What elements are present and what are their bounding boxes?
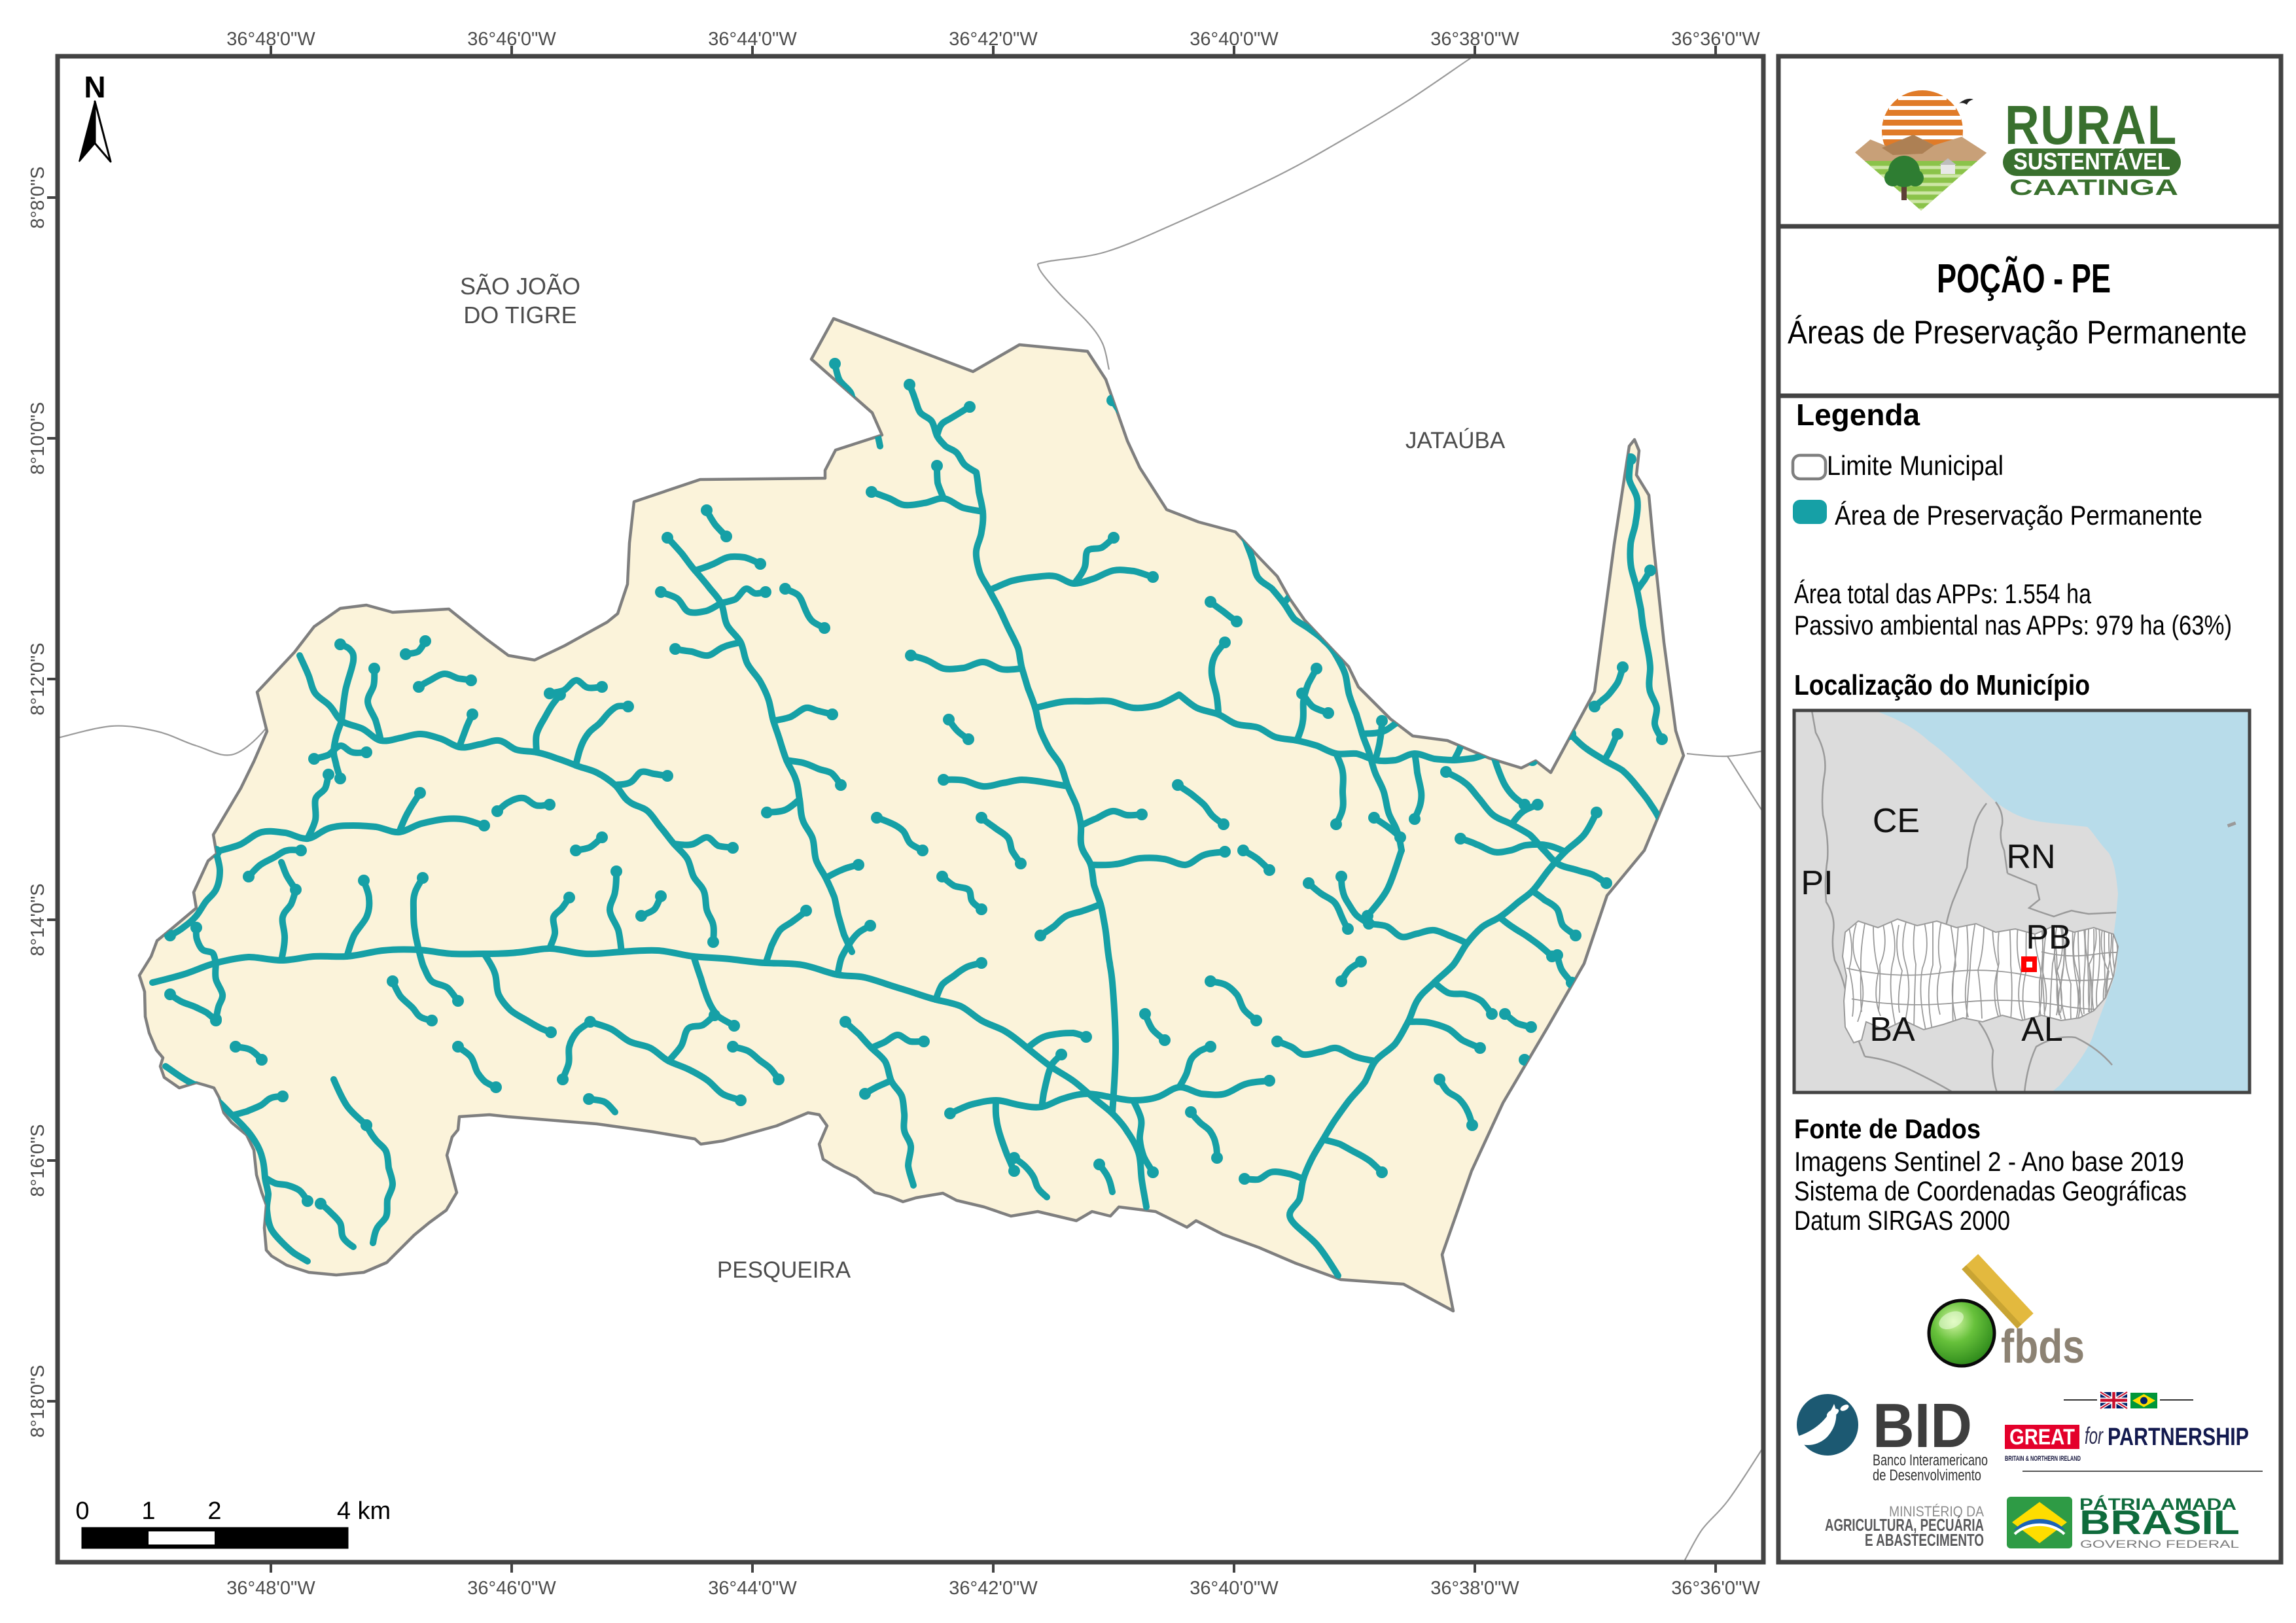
svg-text:PI: PI	[1801, 864, 1833, 902]
svg-text:Imagens Sentinel 2 - Ano base: Imagens Sentinel 2 - Ano base 2019	[1794, 1146, 2184, 1177]
svg-text:fbds: fbds	[2001, 1321, 2085, 1373]
svg-text:36°46'0"W: 36°46'0"W	[467, 29, 556, 50]
svg-text:8°10'0"S: 8°10'0"S	[27, 402, 48, 474]
svg-text:Legenda: Legenda	[1796, 398, 1920, 432]
svg-text:PB: PB	[2026, 918, 2071, 956]
svg-text:DO TIGRE: DO TIGRE	[463, 302, 576, 328]
svg-text:36°42'0"W: 36°42'0"W	[949, 29, 1038, 50]
svg-text:POÇÃO - PE: POÇÃO - PE	[1937, 256, 2111, 302]
svg-text:Datum SIRGAS 2000: Datum SIRGAS 2000	[1794, 1205, 2010, 1236]
svg-text:1: 1	[141, 1497, 155, 1525]
svg-text:2: 2	[207, 1497, 221, 1525]
svg-text:E ABASTECIMENTO: E ABASTECIMENTO	[1865, 1530, 1984, 1550]
svg-text:GOVERNO FEDERAL: GOVERNO FEDERAL	[2080, 1538, 2239, 1550]
svg-text:de Desenvolvimento: de Desenvolvimento	[1873, 1467, 1981, 1484]
svg-text:8°8'0"S: 8°8'0"S	[27, 166, 48, 228]
svg-text:8°18'0"S: 8°18'0"S	[27, 1365, 48, 1437]
svg-text:8°12'0"S: 8°12'0"S	[27, 642, 48, 715]
svg-text:Fonte de Dados: Fonte de Dados	[1794, 1113, 1981, 1144]
svg-text:8°16'0"S: 8°16'0"S	[27, 1124, 48, 1196]
svg-text:JATAÚBA: JATAÚBA	[1405, 428, 1506, 453]
svg-text:36°38'0"W: 36°38'0"W	[1430, 29, 1519, 50]
svg-text:PESQUEIRA: PESQUEIRA	[717, 1257, 851, 1283]
svg-text:36°36'0"W: 36°36'0"W	[1671, 29, 1760, 50]
svg-text:BRITAIN & NORTHERN IRELAND: BRITAIN & NORTHERN IRELAND	[2005, 1455, 2081, 1463]
svg-text:RN: RN	[2006, 838, 2055, 876]
svg-text:RURAL: RURAL	[2005, 94, 2178, 156]
svg-text:GREAT: GREAT	[2009, 1425, 2075, 1450]
svg-text:36°48'0"W: 36°48'0"W	[226, 1578, 315, 1599]
svg-text:36°36'0"W: 36°36'0"W	[1671, 1578, 1760, 1599]
svg-text:SUSTENTÁVEL: SUSTENTÁVEL	[2013, 148, 2170, 175]
svg-text:for: for	[2085, 1422, 2104, 1449]
svg-text:0: 0	[75, 1497, 89, 1525]
svg-text:36°44'0"W: 36°44'0"W	[708, 1578, 797, 1599]
svg-text:AL: AL	[2021, 1011, 2063, 1049]
svg-text:36°40'0"W: 36°40'0"W	[1190, 1578, 1279, 1599]
svg-text:BRASIL: BRASIL	[2079, 1504, 2240, 1542]
svg-text:8°14'0"S: 8°14'0"S	[27, 883, 48, 956]
svg-text:Áreas de Preservação Permanent: Áreas de Preservação Permanente	[1788, 314, 2247, 351]
svg-text:Passivo ambiental nas APPs: 97: Passivo ambiental nas APPs: 979 ha (63%)	[1794, 610, 2232, 640]
svg-text:4 km: 4 km	[337, 1497, 391, 1525]
svg-text:Localização do Município: Localização do Município	[1794, 669, 2090, 701]
svg-text:36°44'0"W: 36°44'0"W	[708, 29, 797, 50]
svg-text:BA: BA	[1869, 1011, 1915, 1049]
svg-text:Área total das APPs: 1.554 ha: Área total das APPs: 1.554 ha	[1794, 578, 2092, 609]
svg-text:SÃO JOÃO: SÃO JOÃO	[460, 273, 580, 300]
svg-text:Sistema de Coordenadas Geográf: Sistema de Coordenadas Geográficas	[1794, 1176, 2187, 1206]
svg-text:PARTNERSHIP: PARTNERSHIP	[2108, 1423, 2249, 1451]
svg-text:CAATINGA: CAATINGA	[2009, 175, 2178, 200]
svg-text:36°40'0"W: 36°40'0"W	[1190, 29, 1279, 50]
svg-text:BID: BID	[1873, 1391, 1972, 1461]
svg-text:Limite Municipal: Limite Municipal	[1827, 450, 2004, 481]
svg-text:36°38'0"W: 36°38'0"W	[1430, 1578, 1519, 1599]
svg-text:CE: CE	[1873, 802, 1920, 840]
svg-text:Área de Preservação Permanente: Área de Preservação Permanente	[1835, 500, 2202, 531]
svg-text:N: N	[84, 70, 105, 104]
svg-text:36°46'0"W: 36°46'0"W	[467, 1578, 556, 1599]
svg-text:36°42'0"W: 36°42'0"W	[949, 1578, 1038, 1599]
svg-text:36°48'0"W: 36°48'0"W	[226, 29, 315, 50]
